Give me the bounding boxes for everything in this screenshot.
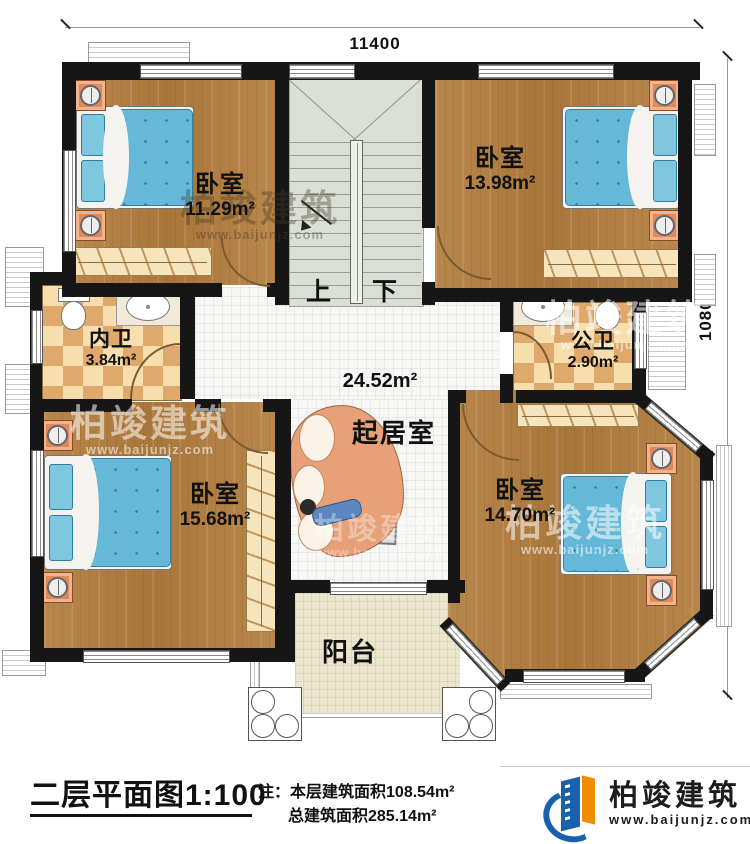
label-living-name: 起居室: [352, 413, 436, 450]
logo-building-icon: [545, 775, 601, 833]
pillow: [81, 160, 105, 202]
window: [140, 64, 242, 79]
wardrobe: [543, 249, 681, 278]
room-name: 内卫: [58, 328, 164, 352]
wardrobe: [246, 450, 276, 632]
eave-outline: [648, 306, 686, 390]
bed-top-right: [562, 106, 680, 209]
wall-segment: [282, 593, 295, 662]
bed-sheet-fold: [627, 105, 653, 209]
toilet-bowl: [595, 301, 620, 330]
floor-plan-page: 11400 10800 上 下: [0, 0, 750, 844]
window: [63, 150, 76, 252]
nightstand: [75, 80, 106, 111]
wall-segment: [427, 580, 465, 593]
wall-segment: [180, 287, 195, 399]
wall-segment: [500, 288, 513, 332]
room-area: 13.98m²: [430, 173, 570, 194]
sofa-cushion: [299, 414, 335, 462]
room-name: 卧室: [145, 482, 285, 509]
page-title: 二层平面图1:100: [30, 770, 267, 814]
room-name: 公卫: [540, 330, 646, 354]
note-area-floor: 本层建筑面积108.54m²: [290, 784, 455, 801]
pillow: [645, 526, 667, 568]
room-area: 14.70m²: [450, 505, 590, 526]
label-bedroom-bottom-right: 卧室 14.70m²: [450, 478, 590, 526]
lamp-icon: [654, 215, 675, 236]
window: [289, 64, 355, 79]
bed-sheet-fold: [621, 472, 645, 574]
wall-segment: [282, 580, 330, 593]
title-underline: [30, 814, 252, 817]
wall-segment: [62, 283, 222, 297]
label-bedroom-top-right: 卧室 13.98m²: [430, 146, 570, 194]
note-line-1: 注：本层建筑面积108.54m²: [258, 778, 455, 802]
footer-divider: [500, 766, 750, 767]
room-name: 卧室: [150, 172, 290, 199]
room-name: 卧室: [430, 146, 570, 173]
wall-segment: [42, 399, 132, 412]
wall-segment: [422, 62, 435, 228]
bed-sheet-fold: [73, 454, 99, 570]
pillow: [645, 480, 667, 522]
dimension-line-top: [65, 27, 700, 28]
window: [31, 310, 43, 364]
note-line-2: 总建筑面积285.14m²: [288, 802, 437, 826]
room-area: 15.68m²: [145, 509, 285, 530]
column-circle: [275, 714, 299, 738]
balcony-column: [442, 687, 496, 741]
eave-outline: [500, 684, 652, 699]
bed-sheet-fold: [103, 105, 129, 209]
nightstand: [646, 575, 677, 606]
lamp-icon: [651, 580, 672, 601]
label-bath-public: 公卫 2.90m²: [540, 330, 646, 371]
room-area: 2.90m²: [540, 354, 646, 372]
note-label: 注：: [258, 784, 290, 801]
wall-segment: [422, 282, 435, 305]
label-living-area: 24.52m²: [320, 370, 440, 392]
window: [330, 582, 427, 595]
stair-up-label: 上: [306, 272, 331, 308]
toilet-bowl: [61, 301, 86, 330]
label-bedroom-top-left: 卧室 11.29m²: [150, 172, 290, 220]
window: [523, 670, 625, 683]
window: [478, 64, 614, 79]
wardrobe: [517, 404, 639, 427]
wardrobe: [73, 247, 212, 276]
wall-segment: [678, 62, 692, 302]
lamp-icon: [47, 425, 68, 446]
column-circle: [469, 690, 493, 714]
wall-segment: [448, 390, 466, 403]
nightstand: [75, 210, 106, 241]
wall-segment: [435, 288, 692, 302]
room-area: 24.52m²: [320, 370, 440, 392]
logo-site-url: www.baijunjz.com: [609, 812, 750, 827]
bay-eave: [716, 445, 732, 627]
room-name: 卧室: [450, 478, 590, 505]
wall-segment: [500, 374, 513, 403]
pillow: [49, 464, 73, 510]
label-bath-inner: 内卫 3.84m²: [58, 328, 164, 369]
logo-tower-orange: [582, 775, 595, 824]
window: [701, 480, 714, 590]
room-area: 11.29m²: [150, 199, 290, 220]
lamp-icon: [651, 448, 672, 469]
wall-segment: [516, 390, 646, 403]
stair-down-label: 下: [372, 272, 397, 308]
logo-tower-blue: [561, 777, 580, 832]
plan-title: 二层平面图: [30, 779, 185, 812]
column-circle: [469, 714, 493, 738]
nightstand: [649, 80, 680, 111]
lamp-icon: [80, 215, 101, 236]
company-logo: 柏竣建筑 www.baijunjz.com: [545, 775, 750, 833]
stair-divider: [350, 140, 363, 304]
logo-text: 柏竣建筑 www.baijunjz.com: [609, 781, 750, 826]
eave-outline: [694, 84, 716, 156]
logo-brand-name: 柏竣建筑: [609, 781, 750, 811]
lamp-icon: [47, 577, 68, 598]
balcony-column: [248, 687, 302, 741]
nightstand: [646, 443, 677, 474]
pillow: [653, 114, 677, 156]
nightstand: [42, 420, 73, 451]
window: [31, 450, 44, 557]
pillow: [653, 160, 677, 202]
column-circle: [445, 714, 469, 738]
lamp-icon: [654, 85, 675, 106]
column-circle: [251, 714, 275, 738]
column-circle: [251, 690, 275, 714]
note-area-total: 总建筑面积285.14m²: [288, 808, 437, 825]
dimension-top-value: 11400: [330, 34, 420, 54]
plan-scale: 1:100: [185, 779, 267, 812]
lamp-icon: [80, 85, 101, 106]
pillow: [81, 114, 105, 156]
label-balcony: 阳台: [322, 632, 378, 669]
label-bedroom-bottom-left: 卧室 15.68m²: [145, 482, 285, 530]
room-area: 3.84m²: [58, 352, 164, 370]
pillow: [49, 515, 73, 561]
eave-outline: [694, 254, 716, 306]
nightstand: [42, 572, 73, 603]
window: [83, 650, 230, 663]
nightstand: [649, 210, 680, 241]
